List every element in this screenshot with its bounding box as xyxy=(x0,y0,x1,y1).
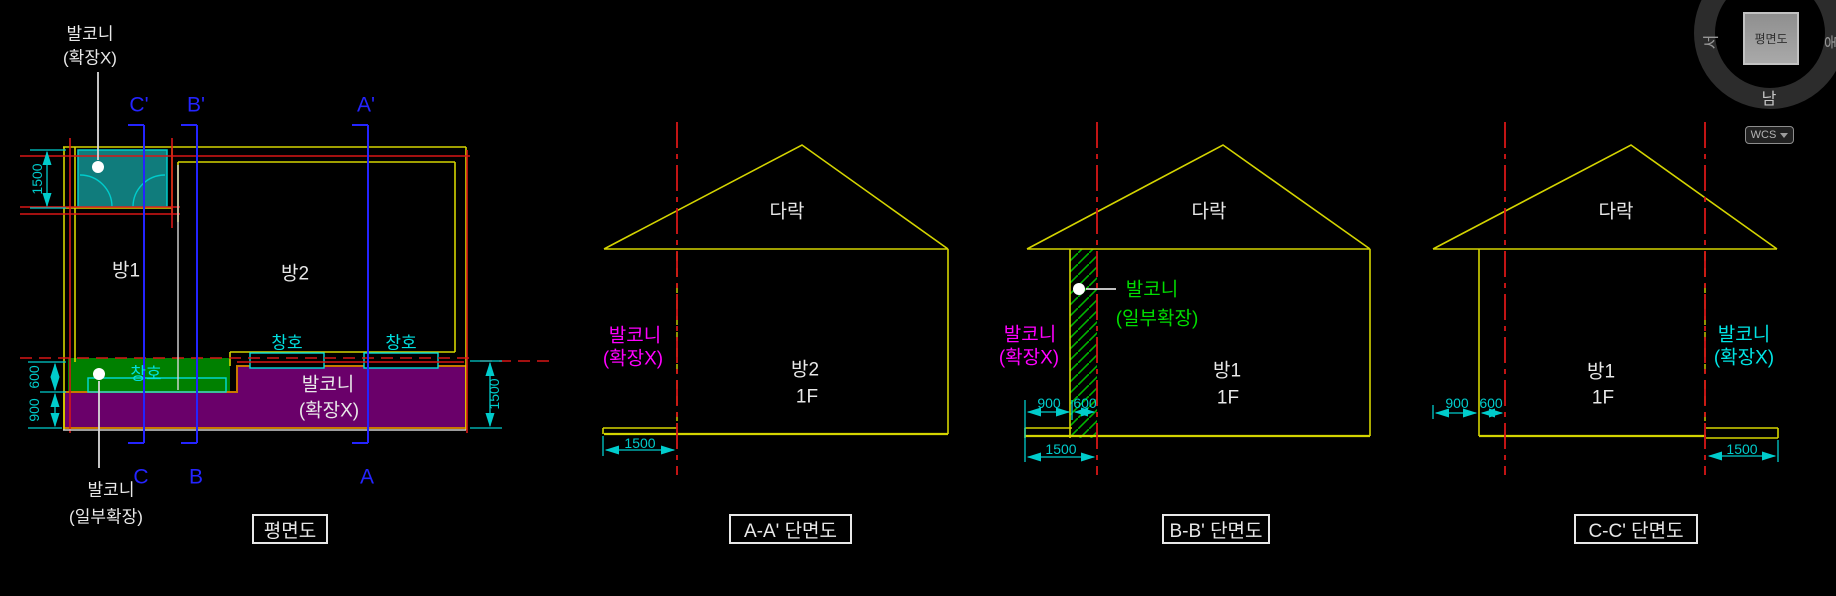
plan-balcony-top-label-1: 발코니 xyxy=(67,26,114,43)
plan-balcony-bottom-label-1: 발코니 xyxy=(88,482,135,499)
room-label-c: 방1 xyxy=(1587,363,1615,382)
balcony-part-label-b-2: (일부확장) xyxy=(1116,310,1199,329)
section-aa-title-box: A-A' 단면도 xyxy=(729,514,852,544)
balcony-x-label-a-1: 발코니 xyxy=(609,327,661,346)
wcs-dropdown[interactable]: WCS xyxy=(1745,126,1794,144)
leader-dot-section-b xyxy=(1073,283,1085,295)
room-label-a: 방2 xyxy=(791,361,819,380)
section-cc-drawing xyxy=(1433,122,1778,475)
section-cc-title-box: C-C' 단면도 xyxy=(1574,514,1698,544)
viewcube-east-label[interactable]: 동 xyxy=(1821,35,1836,50)
section-mark-c: C xyxy=(133,467,148,488)
viewcube-top-face[interactable]: 평면도 xyxy=(1743,12,1799,65)
window-label-left: 창호 xyxy=(130,366,161,383)
plan-balcony-main-label-1: 발코니 xyxy=(302,376,354,395)
wcs-label: WCS xyxy=(1751,129,1777,141)
room1-label: 방1 xyxy=(112,262,140,281)
plan-balcony-top-area xyxy=(78,150,167,207)
section-mark-a: A xyxy=(360,467,374,488)
plan-balcony-main-label-2: (확장X) xyxy=(299,402,359,421)
section-mark-b: B xyxy=(189,467,203,488)
drawing-layer xyxy=(0,0,1836,596)
dim-1500-b: 1500 xyxy=(1045,442,1076,456)
floor-label-a: 1F xyxy=(796,388,818,407)
balcony-x-label-a-2: (확장X) xyxy=(603,350,663,369)
attic-label-a: 다락 xyxy=(770,203,805,222)
plan-title-box: 평면도 xyxy=(252,514,328,544)
window-symbol-mid xyxy=(250,353,324,368)
dim-1500-c: 1500 xyxy=(1726,442,1757,456)
room2-label: 방2 xyxy=(281,265,309,284)
balcony-x-label-c-1: 발코니 xyxy=(1718,326,1770,345)
attic-label-c: 다락 xyxy=(1599,203,1634,222)
balcony-x-label-b-2: (확장X) xyxy=(999,349,1059,368)
viewcube-south-label[interactable]: 남 xyxy=(1762,85,1777,109)
dim-1500-a: 1500 xyxy=(624,436,655,450)
leader-dot-bottom xyxy=(93,368,105,380)
leader-dot-top xyxy=(92,161,104,173)
leader-lines xyxy=(98,72,99,468)
attic-label-b: 다락 xyxy=(1192,203,1227,222)
dim-600-b: 600 xyxy=(1073,396,1096,410)
plan-dim-600: 600 xyxy=(27,365,41,388)
cad-viewport[interactable]: 발코니 (확장X) C' B' A' 방1 방2 창호 창호 창호 발코니 (확… xyxy=(0,0,1836,596)
dim-900-c: 900 xyxy=(1445,396,1468,410)
plan-dim-1500-right: 1500 xyxy=(487,378,501,409)
section-bb-title-box: B-B' 단면도 xyxy=(1162,514,1270,544)
window-label-mid: 창호 xyxy=(271,335,302,352)
plan-balcony-top-label-2: (확장X) xyxy=(63,50,117,67)
section-aa-drawing xyxy=(603,122,948,475)
plan-dim-1500-left: 1500 xyxy=(30,163,44,194)
section-mark-b-prime: B' xyxy=(187,95,205,116)
wcs-dropdown-arrow-icon xyxy=(1780,133,1788,138)
plan-balcony-bottom-label-2: (일부확장) xyxy=(69,509,143,526)
dim-600-c: 600 xyxy=(1479,396,1502,410)
room-label-b: 방1 xyxy=(1213,362,1241,381)
floor-label-c: 1F xyxy=(1592,389,1614,408)
section-bb-drawing xyxy=(1025,122,1370,475)
section-mark-a-prime: A' xyxy=(357,95,375,116)
section-mark-c-prime: C' xyxy=(129,95,148,116)
balcony-part-label-b-1: 발코니 xyxy=(1126,281,1178,300)
plan-dim-900: 900 xyxy=(27,398,41,421)
window-symbol-right xyxy=(364,353,438,368)
section-lines-c xyxy=(1505,122,1705,475)
viewcube-west-label[interactable]: 서 xyxy=(1697,35,1721,50)
balcony-x-label-c-2: (확장X) xyxy=(1714,349,1774,368)
floor-label-b: 1F xyxy=(1217,389,1239,408)
window-label-right: 창호 xyxy=(385,335,416,352)
balcony-x-label-b-1: 발코니 xyxy=(1004,326,1056,345)
dim-900-b: 900 xyxy=(1037,396,1060,410)
